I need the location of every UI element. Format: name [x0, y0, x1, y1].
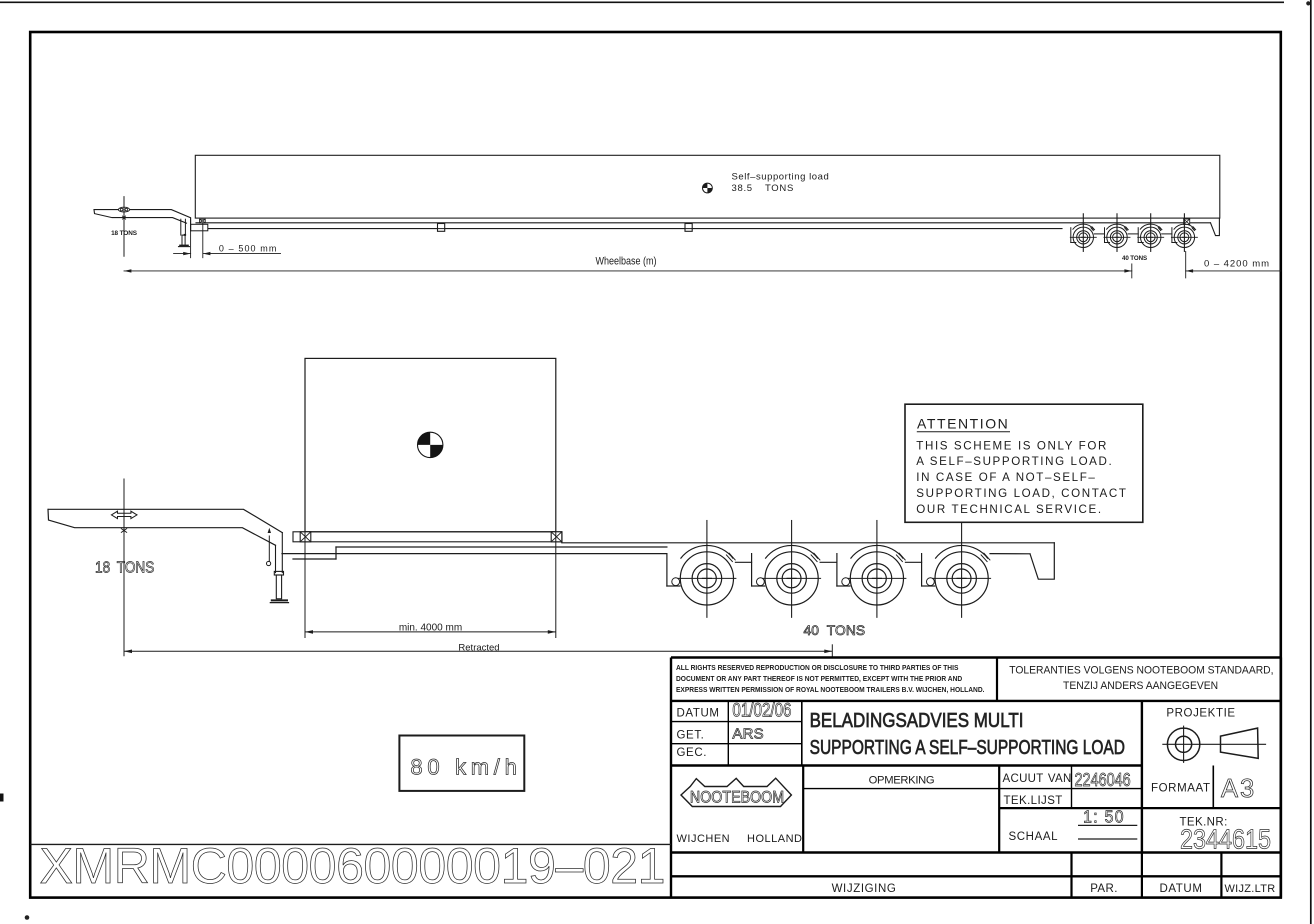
svg-text:FORMAAT: FORMAAT: [1151, 783, 1211, 795]
svg-text:0 – 4200 mm: 0 – 4200 mm: [1204, 259, 1270, 270]
svg-text:WIJZ.LTR: WIJZ.LTR: [1224, 883, 1275, 895]
svg-text:ATTENTION: ATTENTION: [917, 415, 1009, 431]
svg-text:PAR.: PAR.: [1090, 883, 1118, 895]
svg-text:GET.: GET.: [677, 730, 705, 742]
svg-text:BELADINGSADVIES MULTI: BELADINGSADVIES MULTI: [810, 709, 1024, 732]
svg-text:1: 50: 1: 50: [1083, 807, 1125, 827]
svg-text:2344615: 2344615: [1180, 825, 1271, 855]
svg-text:SCHAAL: SCHAAL: [1009, 831, 1059, 843]
svg-text:Self–supporting load: Self–supporting load: [732, 172, 830, 183]
svg-text:EXPRESS WRITTEN PERMISSION OF: EXPRESS WRITTEN PERMISSION OF ROYAL NOOT…: [676, 687, 985, 694]
svg-text:A3: A3: [1221, 775, 1256, 803]
svg-text:DATUM: DATUM: [677, 707, 720, 719]
svg-text:min. 4000 mm: min. 4000 mm: [399, 622, 462, 633]
svg-text:ACUUT VAN: ACUUT VAN: [1003, 773, 1072, 785]
svg-text:0 – 500 mm: 0 – 500 mm: [219, 243, 278, 253]
svg-text:Retracted: Retracted: [458, 643, 499, 654]
svg-text:ALL RIGHTS RESERVED REPRODUCTI: ALL RIGHTS RESERVED REPRODUCTION OR DISC…: [676, 665, 959, 672]
svg-text:40 TONS: 40 TONS: [1122, 255, 1147, 262]
svg-text:WIJCHEN: WIJCHEN: [677, 833, 731, 845]
svg-text:ARS: ARS: [732, 726, 763, 743]
svg-text:SUPPORTING A SELF–SUPPORTING L: SUPPORTING A SELF–SUPPORTING LOAD: [810, 736, 1125, 759]
svg-text:01/02/06: 01/02/06: [732, 699, 791, 721]
svg-text:TOLERANTIES VOLGENS NOOTEBOOM: TOLERANTIES VOLGENS NOOTEBOOM STANDAARD,: [1009, 664, 1273, 676]
svg-text:18 TONS: 18 TONS: [111, 230, 138, 237]
svg-text:A SELF–SUPPORTING LOAD.: A SELF–SUPPORTING LOAD.: [916, 455, 1113, 468]
svg-text:GEC.: GEC.: [677, 747, 708, 759]
svg-text:OUR TECHNICAL SERVICE.: OUR TECHNICAL SERVICE.: [916, 503, 1102, 516]
svg-text:HOLLAND: HOLLAND: [747, 833, 802, 845]
svg-text:TEK.LIJST: TEK.LIJST: [1004, 795, 1063, 807]
svg-text:18 TONS: 18 TONS: [95, 559, 154, 576]
svg-text:80 km/h: 80 km/h: [410, 754, 521, 779]
svg-text:2246046: 2246046: [1075, 769, 1131, 790]
svg-text:OPMERKING: OPMERKING: [869, 775, 935, 787]
svg-text:XMRMC000060000019–021: XMRMC000060000019–021: [40, 838, 666, 894]
svg-text:Wheelbase (m): Wheelbase (m): [595, 256, 656, 268]
svg-text:THIS SCHEME IS ONLY FOR: THIS SCHEME IS ONLY FOR: [916, 440, 1108, 453]
svg-text:DOCUMENT OR ANY PART THEREOF I: DOCUMENT OR ANY PART THEREOF IS NOT PERM…: [676, 676, 962, 683]
svg-text:IN CASE OF A NOT–SELF–: IN CASE OF A NOT–SELF–: [916, 471, 1096, 484]
svg-text:TENZIJ ANDERS AANGEGEVEN: TENZIJ ANDERS AANGEGEVEN: [1063, 680, 1218, 692]
svg-text:38.5 TONS: 38.5 TONS: [732, 183, 794, 194]
svg-text:NOOTEBOOM: NOOTEBOOM: [690, 788, 784, 806]
svg-text:40 TONS: 40 TONS: [804, 623, 866, 638]
svg-text:PROJEKTIE: PROJEKTIE: [1166, 708, 1235, 720]
svg-text:DATUM: DATUM: [1159, 883, 1202, 895]
svg-text:SUPPORTING LOAD, CONTACT: SUPPORTING LOAD, CONTACT: [916, 487, 1127, 500]
svg-text:WIJZIGING: WIJZIGING: [832, 883, 897, 895]
